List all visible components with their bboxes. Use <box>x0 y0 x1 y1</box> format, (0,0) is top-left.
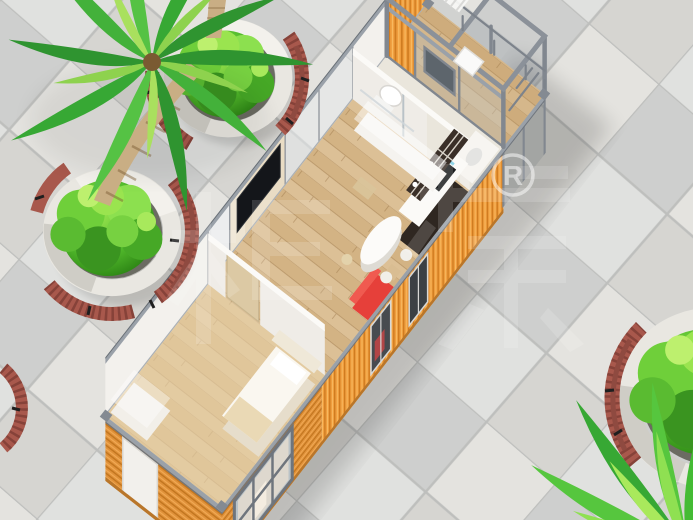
scene: R <box>0 0 693 520</box>
render-canvas: R <box>0 0 693 520</box>
registered-trademark-letter: R <box>503 160 523 191</box>
